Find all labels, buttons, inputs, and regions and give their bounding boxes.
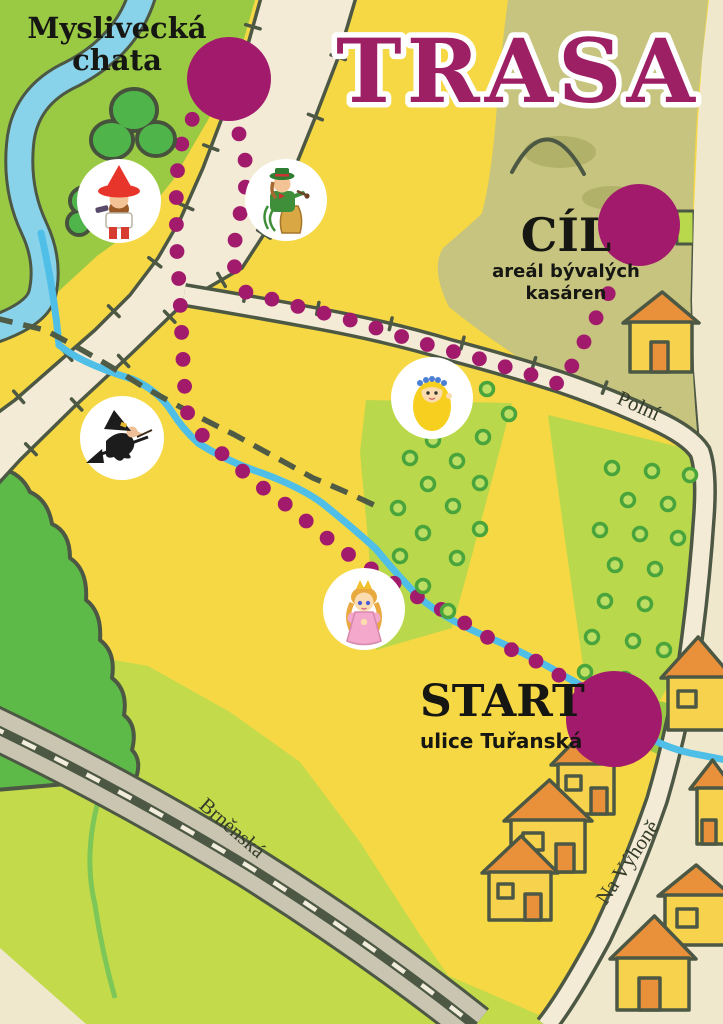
trail-map: BrněnskáPolníNa Výhoně TRASA Myslivecká … [0,0,723,1024]
start-subtitle: ulice Tuřanská [420,729,640,753]
trail-dot [256,481,271,496]
orchard-tree-icon [422,478,435,491]
orchard-tree-icon [634,528,647,541]
chata-label-line2: chata [8,44,226,76]
trail-dot [564,359,579,374]
page-title: TRASA [336,19,700,123]
orchard-tree-icon [442,605,455,618]
orchard-tree-icon [662,498,675,511]
orchard-tree-icon [447,500,460,513]
station-vodnik [245,159,327,241]
orchard-tree-icon [646,465,659,478]
trail-dot [185,112,200,127]
trail-dot [472,351,487,366]
cil-label: CÍL areál bývalých kasáren [455,212,677,304]
trail-dot [169,217,184,232]
trail-dot [170,163,185,178]
trail-dot [215,446,230,461]
trail-dot [177,379,192,394]
orchard-tree-icon [606,462,619,475]
orchard-tree-icon [417,580,430,593]
station-vila [391,357,473,439]
map-canvas: BrněnskáPolníNa Výhoně TRASA [0,0,723,1024]
trail-dot [291,299,306,314]
trail-dot [549,376,564,391]
orchard-tree-icon [684,469,697,482]
orchard-tree-icon [474,523,487,536]
trail-dot [169,190,184,205]
trail-dot [299,514,314,529]
chata-label-line1: Myslivecká [8,12,226,44]
trail-dot [446,344,461,359]
station-witch [80,396,164,480]
trail-dot [341,547,356,562]
orchard-tree-icon [392,502,405,515]
orchard-tree-icon [599,595,612,608]
trail-dot [195,428,210,443]
start-title: START [420,680,640,724]
trail-dot [227,259,242,274]
trail-dot [278,497,293,512]
trail-dot [170,244,185,259]
trail-dot [524,367,539,382]
trail-dot [233,206,248,221]
orchard-tree-icon [639,598,652,611]
trail-dot [420,337,435,352]
trail-dot [239,285,254,300]
start-label: START ulice Tuřanská [420,680,640,753]
trail-dot [457,616,472,631]
orchard-tree-icon [451,552,464,565]
trail-dot [343,313,358,328]
orchard-tree-icon [627,635,640,648]
orchard-tree-icon [503,408,516,421]
orchard-tree-icon [404,452,417,465]
orchard-tree-icon [622,494,635,507]
trail-dot [320,531,335,546]
trail-dot [394,329,409,344]
orchard-tree-icon [417,527,430,540]
trail-dot [235,464,250,479]
orchard-tree-icon [394,550,407,563]
orchard-tree-icon [481,383,494,396]
orchard-tree-icon [609,559,622,572]
trail-dot [577,335,592,350]
orchard-tree-icon [586,631,599,644]
trail-dot [171,271,186,286]
trail-dot [498,359,513,374]
orchard-tree-icon [477,431,490,444]
cil-subtitle: areál bývalých kasáren [455,261,677,304]
cil-title: CÍL [455,212,677,258]
trail-dot [369,321,384,336]
trail-dot [180,405,195,420]
trail-dot [504,642,519,657]
trail-dot [317,306,332,321]
chata-label: Myslivecká chata [8,12,226,77]
orchard-tree-icon [474,477,487,490]
trail-dot [174,325,189,340]
orchard-tree-icon [649,563,662,576]
trail-map-poster: { "title": "TRASA", "markers": { "chata"… [0,0,723,1024]
orchard-tree-icon [658,644,671,657]
trail-dot [529,654,544,669]
trail-dot [176,352,191,367]
orchard-tree-icon [594,524,607,537]
trail-dot [265,292,280,307]
trail-dot [238,153,253,168]
orchard-tree-icon [672,532,685,545]
trail-dot [589,310,604,325]
station-bandit [77,159,161,243]
trail-dot [480,630,495,645]
station-princezna [323,568,405,650]
orchard-tree-icon [451,455,464,468]
trail-dot [228,233,243,248]
hill-shade [524,136,596,168]
trail-dot [173,298,188,313]
trail-dot [232,126,247,141]
